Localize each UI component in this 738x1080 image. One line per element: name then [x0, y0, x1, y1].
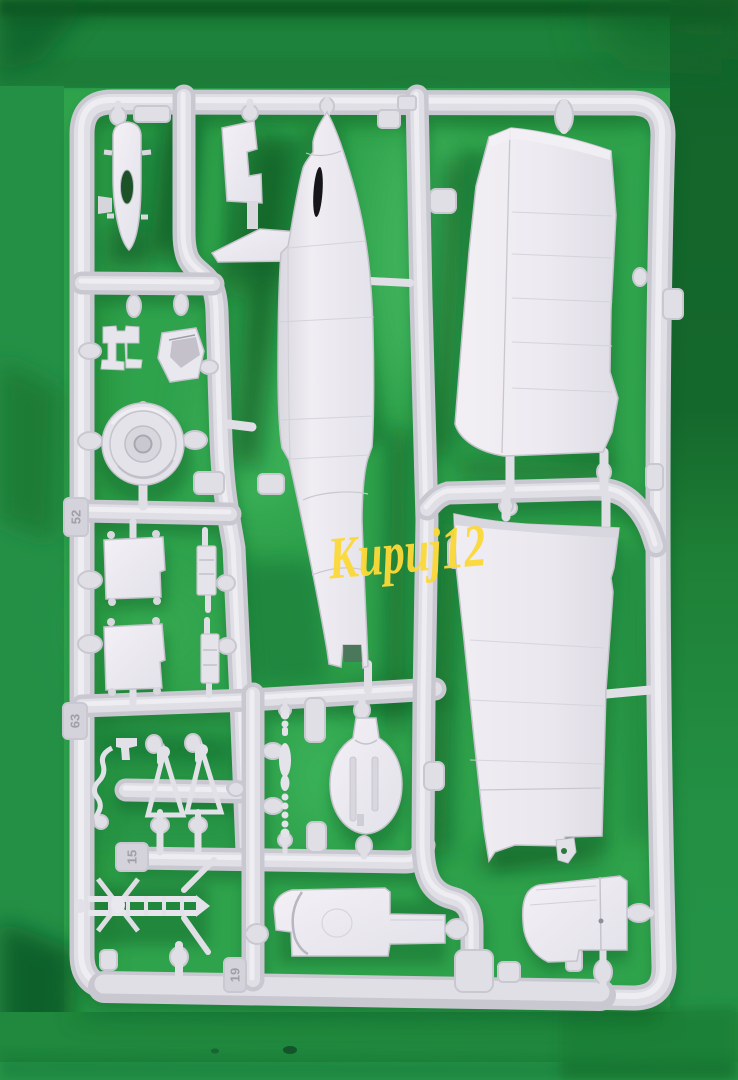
svg-text:Kupuj12: Kupuj12	[325, 512, 489, 592]
svg-text:19: 19	[228, 968, 243, 982]
svg-text:52: 52	[69, 510, 84, 524]
svg-text:15: 15	[125, 850, 140, 864]
svg-text:63: 63	[68, 714, 83, 728]
